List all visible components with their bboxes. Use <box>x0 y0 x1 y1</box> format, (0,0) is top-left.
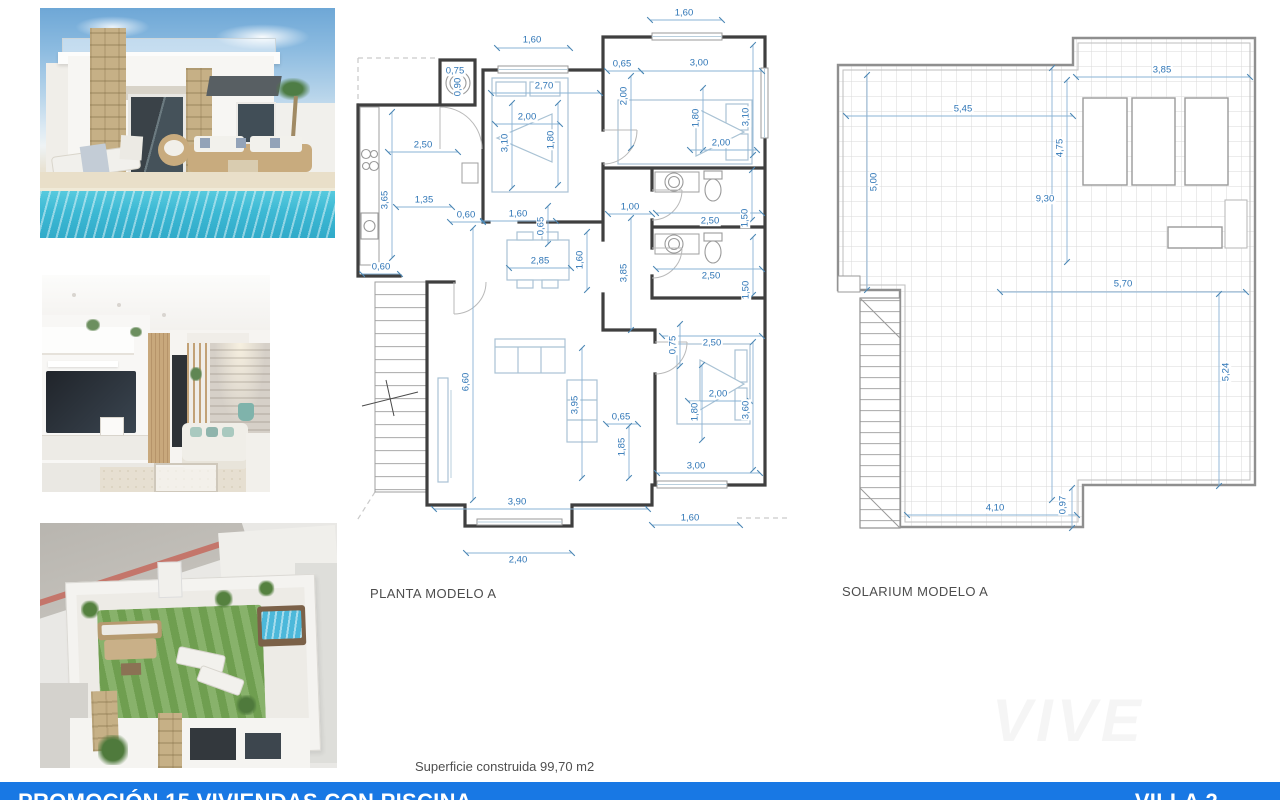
awning <box>206 76 282 96</box>
tv-lowboard <box>42 435 148 460</box>
palm-plant <box>98 735 128 765</box>
planta-title: PLANTA MODELO A <box>370 586 496 601</box>
pool-ripples <box>40 191 335 238</box>
photo-villa-exterior <box>40 8 335 238</box>
plan-stairs <box>362 282 427 492</box>
wood-column <box>148 333 170 465</box>
sofa-cushion <box>102 623 158 635</box>
sofa-seat <box>104 638 157 660</box>
dark-window <box>190 728 236 760</box>
teal-pillow <box>206 427 218 437</box>
chimney <box>157 561 182 598</box>
stone-pillar <box>158 713 182 768</box>
throw-pillow <box>270 138 280 148</box>
jacuzzi-water <box>261 610 302 639</box>
plant <box>236 695 257 716</box>
solarium-stairs <box>838 276 900 528</box>
ceiling-spotlight <box>72 293 76 297</box>
brochure-page: 1,602,702,003,101,800,750,901,600,653,00… <box>0 0 1280 800</box>
photo-rooftop-aerial <box>40 523 337 768</box>
floor-plan-solarium <box>836 36 1260 560</box>
floor-plan-planta <box>352 8 788 570</box>
table-lamp <box>238 403 254 421</box>
plant <box>214 590 233 609</box>
wall-shelf <box>48 361 118 367</box>
plant <box>86 319 100 331</box>
teal-pillow <box>190 427 202 437</box>
plan-furniture <box>438 78 752 482</box>
glass-coffee-table <box>154 463 218 492</box>
ceiling-spotlight <box>117 303 121 307</box>
round-chair-cushion <box>164 140 184 156</box>
low-table <box>121 663 141 676</box>
dark-window <box>245 733 281 759</box>
ceiling-spotlight <box>162 313 166 317</box>
teal-pillow <box>222 427 234 437</box>
watermark: VIVE <box>992 686 1145 755</box>
upper-cabinet <box>42 327 134 355</box>
footer-villa-label: VILLA 2 <box>1135 789 1218 800</box>
plant <box>258 580 275 597</box>
plant <box>81 600 100 619</box>
lounger-back <box>119 135 143 160</box>
solarium-title: SOLARIUM MODELO A <box>842 584 988 599</box>
throw-pillow <box>200 138 210 148</box>
sofa-right-edge <box>246 433 270 492</box>
footer-title: PROMOCIÓN 15 VIVIENDAS CON PISCINA <box>18 789 472 800</box>
photo-living-room <box>42 275 270 492</box>
footer-bar: PROMOCIÓN 15 VIVIENDAS CON PISCINA VILLA… <box>0 782 1280 800</box>
superficie-text: Superficie construida 99,70 m2 <box>415 759 594 774</box>
plant <box>190 367 202 381</box>
rooftop-sofa-set <box>97 620 163 672</box>
throw-pillow <box>236 138 246 148</box>
picture-frame <box>100 417 124 436</box>
plant <box>130 327 142 337</box>
jacuzzi-box <box>257 605 306 647</box>
